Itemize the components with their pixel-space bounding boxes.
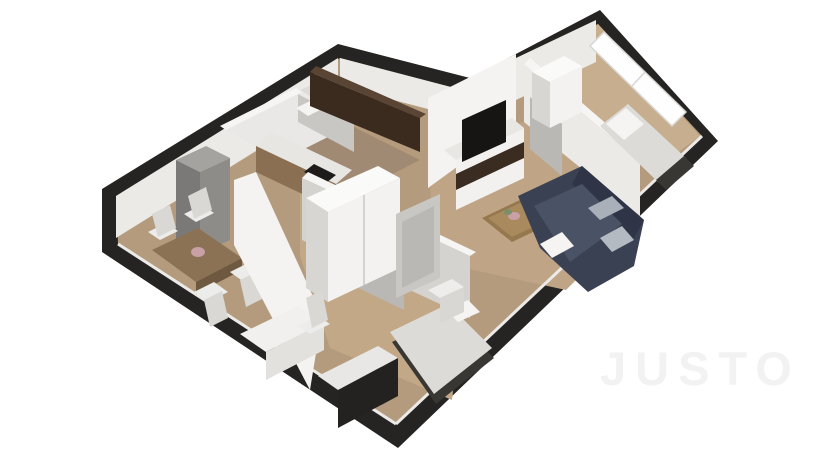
dining-centerpiece <box>191 247 205 257</box>
coffee-table-plant-leaves <box>504 209 512 215</box>
floor-plan-canvas: JUSTO <box>0 0 832 468</box>
watermark-text: JUSTO <box>600 342 801 395</box>
wardrobe-side <box>306 198 328 302</box>
floor-plan-render: JUSTO <box>0 0 832 468</box>
